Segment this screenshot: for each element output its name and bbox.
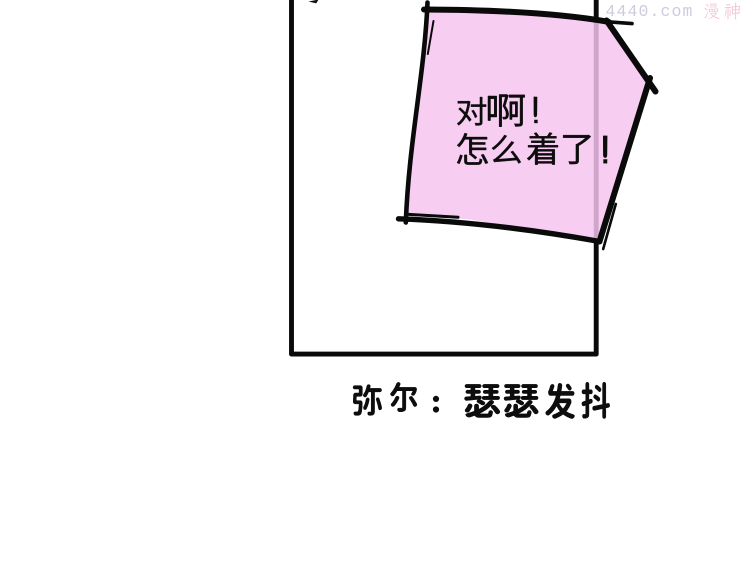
svg-text:4440.com: 4440.com	[606, 2, 694, 21]
